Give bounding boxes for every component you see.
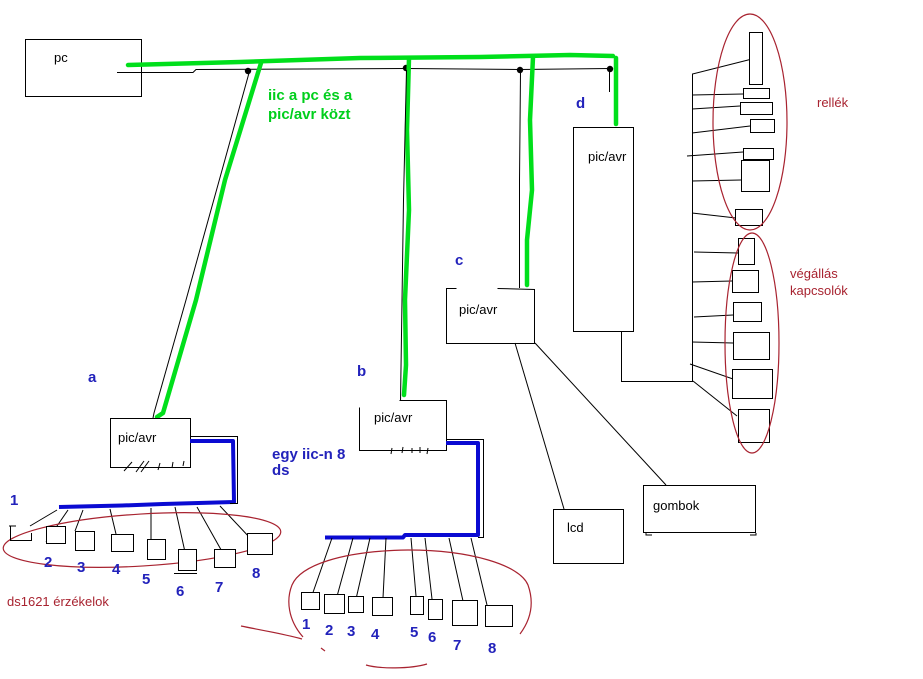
svg-text:pc: pc xyxy=(54,50,68,65)
svg-text:a: a xyxy=(88,369,97,386)
svg-text:5: 5 xyxy=(142,571,150,588)
svg-text:6: 6 xyxy=(176,583,184,600)
svg-text:8: 8 xyxy=(252,565,260,582)
svg-text:iic a pc és a: iic a pc és a xyxy=(268,87,353,104)
svg-text:kapcsolók: kapcsolók xyxy=(790,283,848,298)
svg-text:4: 4 xyxy=(371,626,380,643)
svg-text:végállás: végállás xyxy=(790,266,838,281)
svg-text:ds1621 érzékelok: ds1621 érzékelok xyxy=(7,594,109,609)
svg-text:rellék: rellék xyxy=(817,95,849,110)
svg-text:lcd: lcd xyxy=(567,520,584,535)
svg-text:3: 3 xyxy=(77,559,85,576)
svg-text:egy iic-n 8: egy iic-n 8 xyxy=(272,446,345,463)
svg-text:1: 1 xyxy=(302,616,310,633)
svg-text:2: 2 xyxy=(44,554,52,571)
svg-text:4: 4 xyxy=(112,561,121,578)
svg-text:7: 7 xyxy=(453,637,461,654)
svg-text:pic/avr: pic/avr xyxy=(118,430,157,445)
svg-text:pic/avr: pic/avr xyxy=(374,410,413,425)
svg-text:8: 8 xyxy=(488,640,496,657)
svg-text:ds: ds xyxy=(272,462,290,479)
svg-text:gombok: gombok xyxy=(653,498,700,513)
svg-text:pic/avr közt: pic/avr közt xyxy=(268,106,351,123)
svg-text:c: c xyxy=(455,252,463,269)
svg-text:1: 1 xyxy=(10,492,18,509)
svg-text:b: b xyxy=(357,363,366,380)
svg-text:pic/avr: pic/avr xyxy=(459,302,498,317)
svg-text:5: 5 xyxy=(410,624,418,641)
svg-text:3: 3 xyxy=(347,623,355,640)
svg-text:pic/avr: pic/avr xyxy=(588,149,627,164)
svg-text:7: 7 xyxy=(215,579,223,596)
svg-text:6: 6 xyxy=(428,629,436,646)
svg-text:2: 2 xyxy=(325,622,333,639)
svg-text:d: d xyxy=(576,95,585,112)
